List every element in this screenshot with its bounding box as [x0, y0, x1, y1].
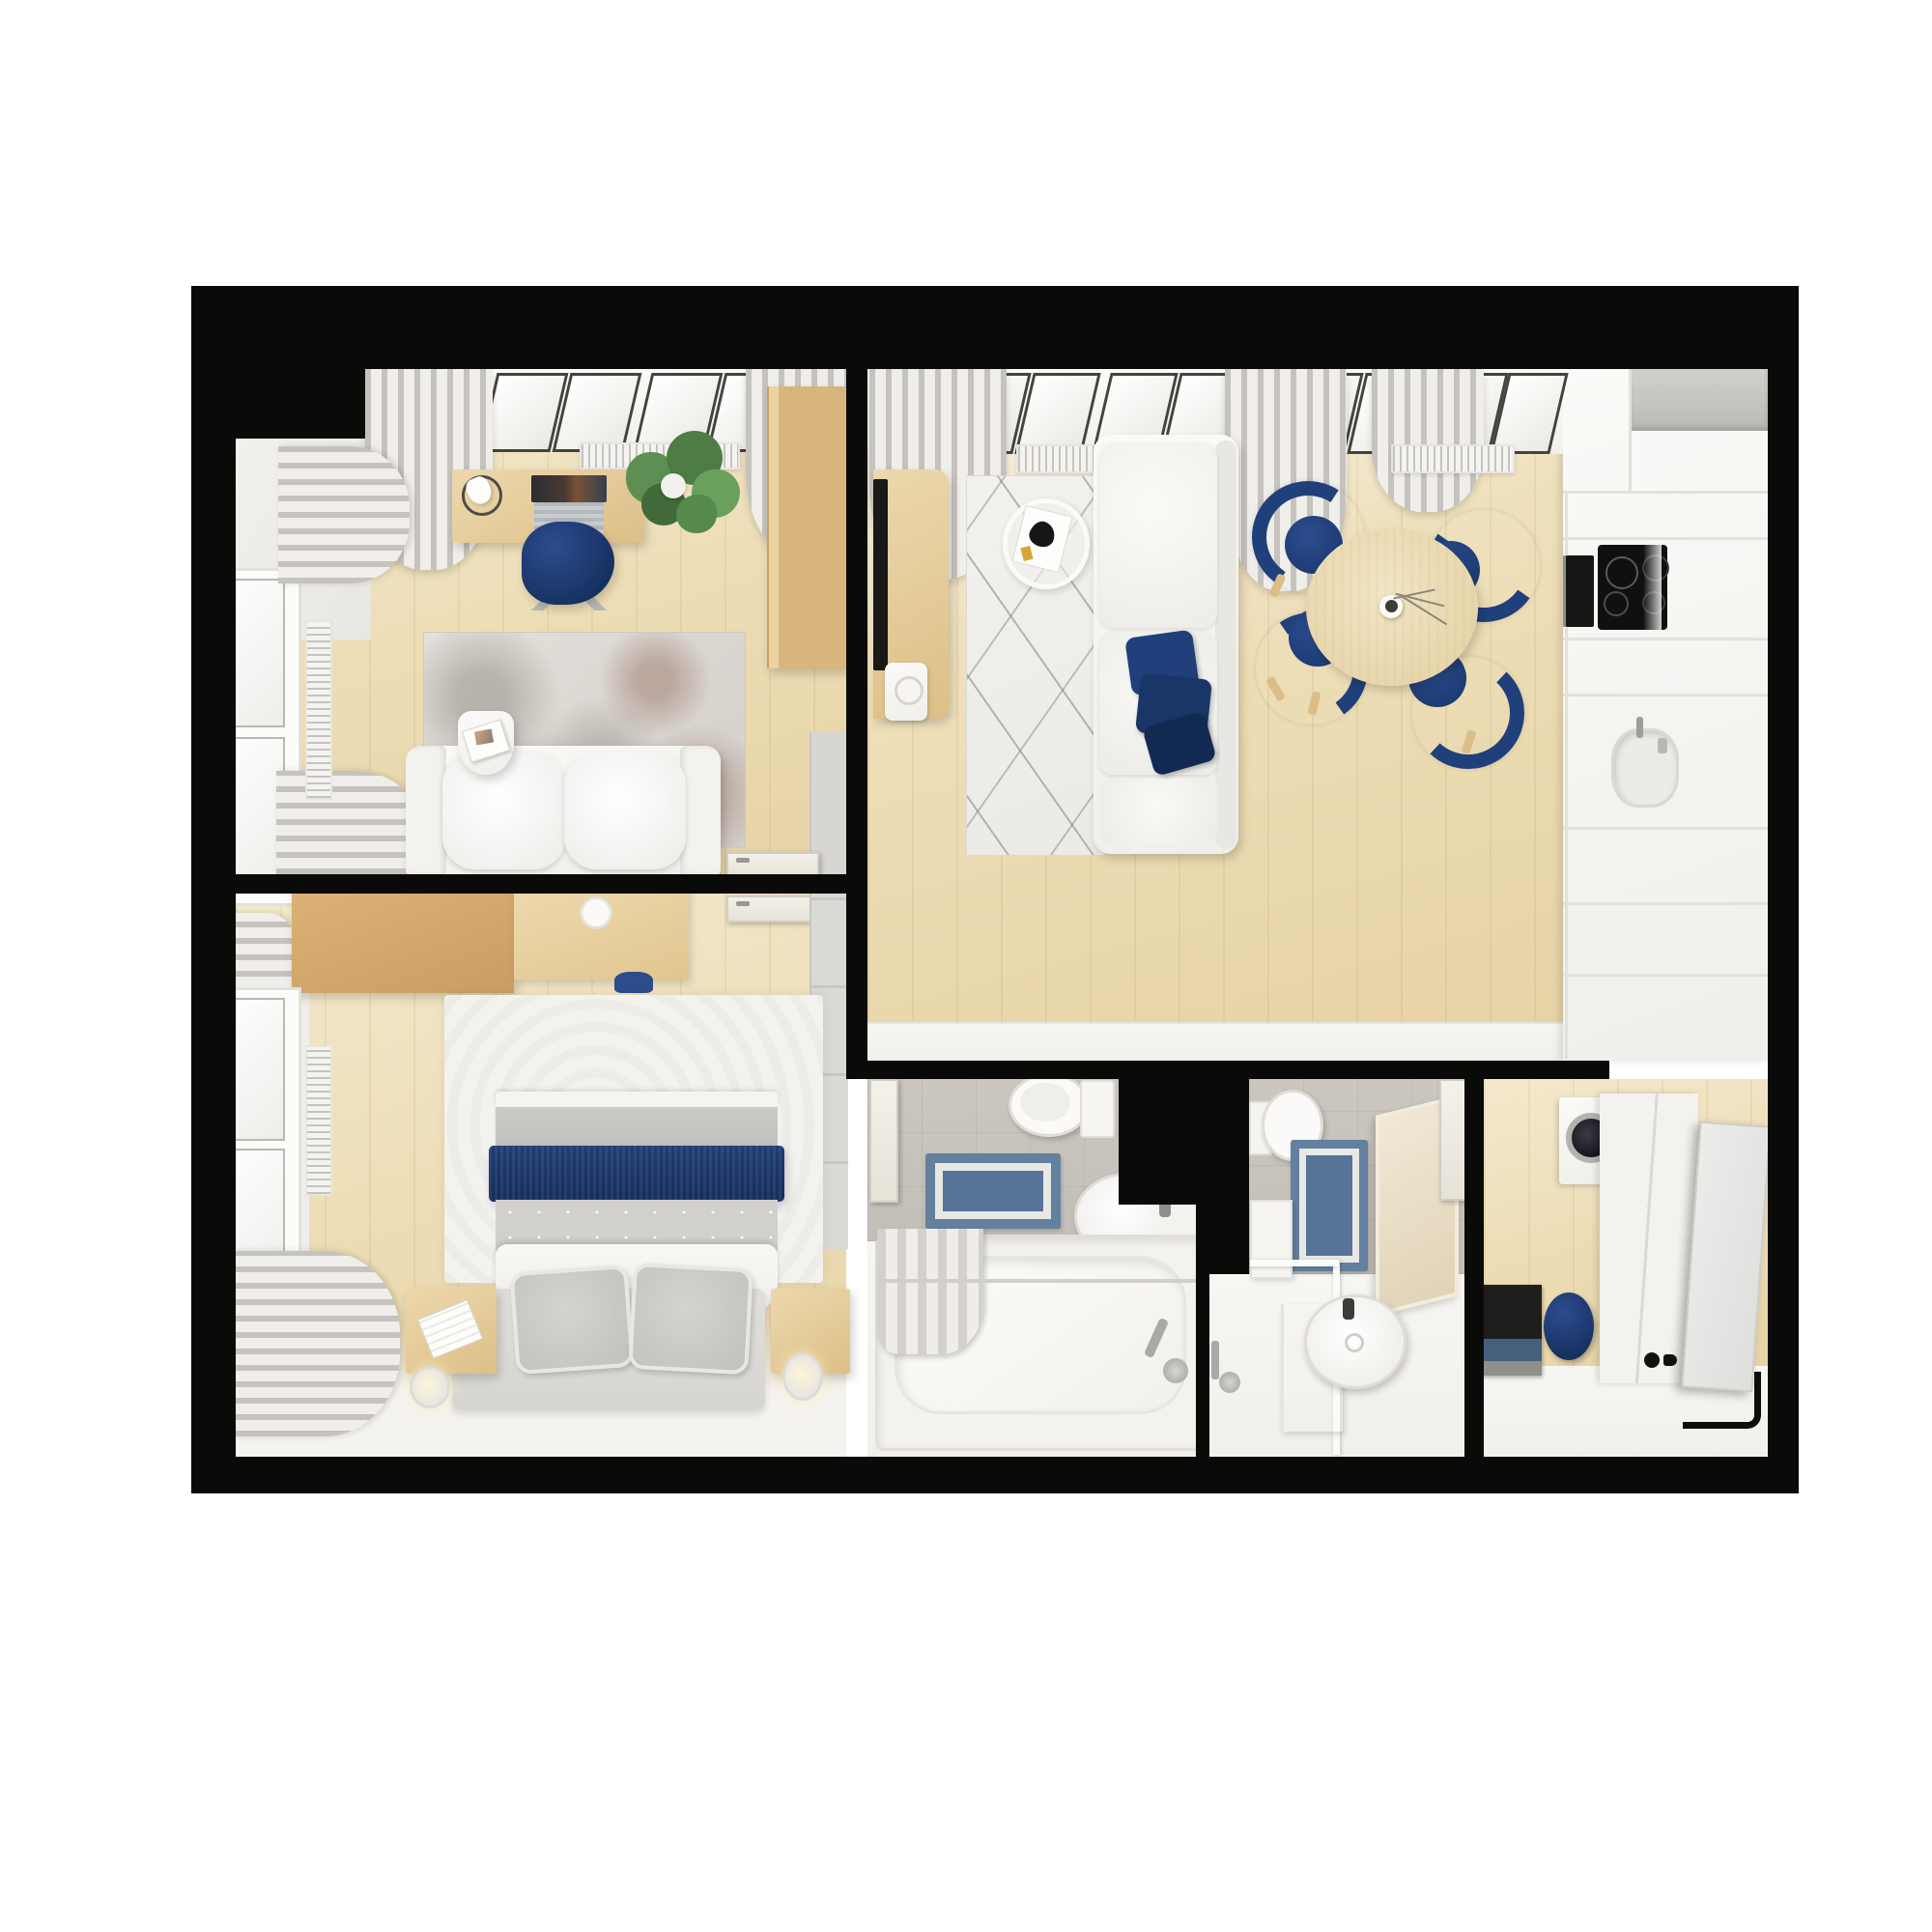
kitchen-seam-1: [1563, 491, 1768, 494]
bathroom-rug: [925, 1153, 1061, 1229]
hallway-pouf: [1544, 1293, 1594, 1360]
kitchen-seam-vertical: [1629, 363, 1632, 491]
wall-living-bottom: [846, 1061, 1609, 1079]
office-side-curtain-bottom: [276, 771, 419, 891]
floor-plan-canvas: [0, 0, 1932, 1932]
bedroom-curtain-bottom: [232, 1251, 400, 1436]
doormat: [1474, 1285, 1542, 1376]
living-sofa-arm-cushion: [1099, 779, 1217, 846]
wall-office-bedroom: [191, 874, 867, 894]
shower-glass-partition-h: [1250, 1260, 1339, 1266]
tv-shelf-vase: [895, 676, 923, 705]
living-room-threshold: [867, 1022, 1609, 1063]
office-sofa-cushion-right: [564, 752, 686, 869]
entrance-door-handle: [1644, 1352, 1660, 1368]
kitchen-seam-5: [1563, 827, 1768, 830]
bathroom-door: [869, 1079, 898, 1203]
cooker-hood: [1629, 369, 1768, 431]
reading-lamp-right: [782, 1352, 823, 1401]
bed-frame-bar: [496, 1092, 778, 1107]
shower-room-cabinet: [1250, 1200, 1293, 1279]
hob-burner-2: [1604, 591, 1629, 616]
laptop-screen: [531, 475, 607, 502]
wall-divider-office-living: [846, 369, 867, 1079]
office-sofa-armrest-right: [680, 746, 721, 874]
hob-burner-1: [1605, 556, 1638, 589]
bed-foot-band: [496, 1107, 778, 1150]
wall-bottom: [191, 1457, 1799, 1493]
kitchen-seam-7: [1563, 974, 1768, 977]
hallway-wardrobe: [1600, 1094, 1698, 1383]
bedroom-door-handle: [736, 901, 750, 906]
shower-room-rug-inner: [1299, 1149, 1359, 1263]
bedroom-stool: [614, 972, 653, 993]
plant-pot: [661, 473, 686, 498]
bed-navy-blanket: [489, 1146, 784, 1202]
entrance-threshold-line: [1683, 1372, 1761, 1429]
bathtub-shower-curtain: [877, 1229, 983, 1354]
kitchen-faucet: [1636, 717, 1643, 738]
office-sofa-cushion-left: [442, 752, 566, 869]
entrance-door-lock: [1663, 1354, 1677, 1366]
doormat-blue-stripe: [1474, 1339, 1542, 1361]
induction-hob: [1598, 545, 1667, 630]
shower-room-sink-faucet: [1343, 1298, 1354, 1320]
kitchen-seam-2: [1563, 537, 1768, 540]
tv-icon: [873, 479, 888, 670]
bathroom-rug-inner: [935, 1163, 1051, 1219]
wall-top: [191, 286, 1799, 369]
living-sofa-back: [1215, 440, 1236, 848]
office-side-curtain-top: [278, 446, 410, 583]
shower-room-rug: [1291, 1140, 1368, 1271]
wall-right: [1768, 286, 1799, 1493]
bedroom-vanity: [292, 887, 514, 993]
hob-glare: [1644, 545, 1662, 630]
bathroom-toilet-tank: [1080, 1080, 1115, 1138]
bathroom-toilet-seat: [1020, 1083, 1070, 1122]
office-radiator-left: [305, 620, 332, 800]
kitchen-cabinet-run: [1563, 363, 1768, 1061]
office-door-handle: [736, 858, 750, 863]
office-sofa-armrest-left: [406, 746, 446, 874]
bed-pillow-left: [509, 1264, 634, 1375]
plant-leaf-5: [676, 495, 717, 533]
bed-pillow-right: [628, 1263, 753, 1375]
shower-faucet: [1211, 1341, 1219, 1379]
bathtub-curtain-rod: [877, 1279, 1198, 1283]
wall-bathroom-right-block: [1119, 1079, 1249, 1205]
dining-table-vase-mouth: [1385, 600, 1398, 612]
kitchen-seam-6: [1563, 902, 1768, 905]
bedroom-vanity-cup: [580, 896, 612, 929]
kitchen-seam-3: [1563, 638, 1768, 640]
kitchen-seam-4: [1563, 694, 1768, 696]
bedroom-door: [726, 895, 819, 923]
bathtub-shower-head: [1163, 1358, 1188, 1383]
kitchen-soap-dispenser: [1658, 738, 1667, 753]
office-wardrobe: [767, 386, 848, 668]
kitchen-sink: [1611, 728, 1679, 808]
wall-top-left-notch: [191, 286, 365, 439]
living-sofa-chaise-cushion: [1099, 442, 1217, 628]
shower-hand-shower: [1219, 1372, 1240, 1393]
doormat-gray-stripe: [1474, 1361, 1542, 1376]
living-radiator-right: [1391, 444, 1515, 473]
bedroom-radiator: [305, 1045, 332, 1196]
wall-bathroom-mid: [1196, 1205, 1249, 1274]
oven: [1563, 555, 1594, 627]
shower-room-sink-drain: [1345, 1333, 1364, 1352]
wall-bathroom-thin: [1196, 1274, 1209, 1458]
living-curtain-right: [1372, 369, 1484, 512]
wall-shower-room-right: [1464, 1079, 1484, 1458]
reading-lamp-left: [410, 1366, 450, 1408]
